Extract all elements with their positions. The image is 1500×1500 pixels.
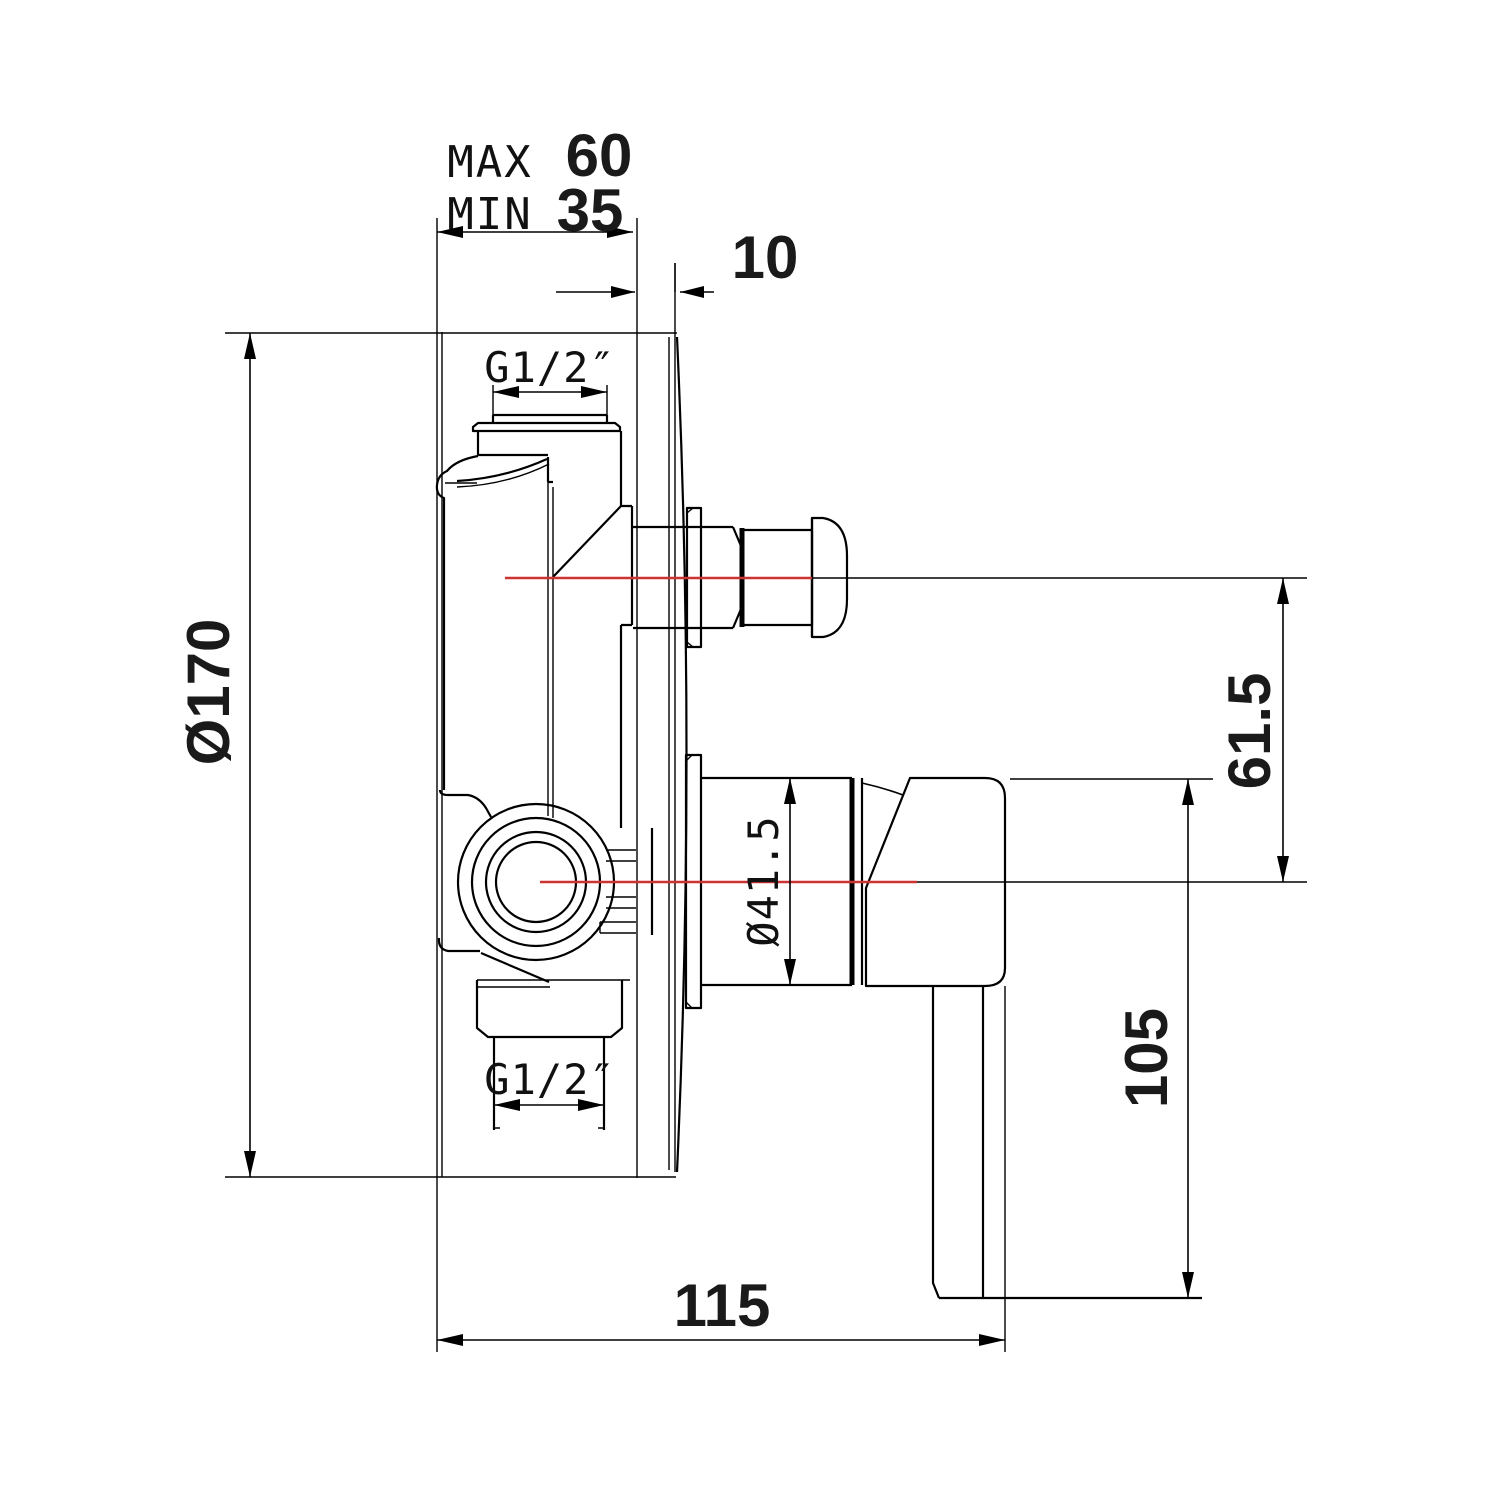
- lever-left-edge: [933, 986, 939, 1298]
- technical-drawing-canvas: MAX 60 MIN 35 10 G1/2″ Ø170 Ø41.5 61.5: [0, 0, 1500, 1500]
- body-left-profile-upper: [437, 456, 478, 790]
- arrowhead: [244, 333, 256, 359]
- dim-overall-depth: 115: [437, 1272, 1005, 1346]
- dim-thread-bottom-value: G1/2″: [484, 1055, 615, 1104]
- arrowhead: [611, 286, 635, 298]
- bell-rim-arc: [862, 783, 903, 795]
- dim-plate-offset-value: 10: [732, 224, 799, 291]
- dim-min-value: 35: [557, 177, 624, 244]
- centerlines: [505, 578, 1307, 882]
- dim-thread-top-value: G1/2″: [484, 343, 615, 392]
- dim-min-label: MIN: [447, 189, 532, 240]
- wing-curve-outer: [457, 459, 547, 481]
- dim-handle-length: 105: [1010, 779, 1213, 1298]
- arrowhead: [1277, 578, 1289, 604]
- body-step-upper: [440, 790, 491, 817]
- arrowhead: [1182, 1272, 1194, 1298]
- bottom-block: [477, 980, 622, 1037]
- lower-shoulder-lines: [477, 980, 630, 987]
- arrowhead: [437, 1334, 463, 1346]
- arrowhead: [1182, 779, 1194, 805]
- dim-plate-diameter-value: Ø170: [175, 619, 242, 766]
- dim-thread-top: G1/2″: [484, 343, 615, 398]
- dim-thread-bottom: G1/2″: [484, 1055, 615, 1111]
- upper-body-block: [478, 431, 621, 506]
- dim-sleeve-diameter-value: Ø41.5: [739, 815, 788, 946]
- diverter-boss: [621, 506, 632, 828]
- body-step-lower: [439, 938, 480, 951]
- arrowhead: [784, 778, 796, 804]
- arrowhead: [680, 286, 704, 298]
- top-pipe-flange: [473, 423, 620, 431]
- shower-valve-dimension-drawing: MAX 60 MIN 35 10 G1/2″ Ø170 Ø41.5 61.5: [0, 0, 1500, 1500]
- cartridge-step: [600, 922, 636, 933]
- dim-overall-depth-value: 115: [674, 1272, 771, 1339]
- arrowhead: [979, 1334, 1005, 1346]
- arrowhead: [784, 959, 796, 985]
- dim-embed-depth: MAX 60 MIN 35: [437, 122, 633, 244]
- valve-body: [437, 385, 652, 1130]
- arrowhead: [1277, 856, 1289, 882]
- diverter-passage-diagonal: [553, 506, 621, 577]
- dim-axis-distance-value: 61.5: [1216, 673, 1283, 790]
- dim-handle-length-value: 105: [1113, 1008, 1180, 1108]
- escutcheon-plate: [669, 263, 687, 1172]
- dim-max-label: MAX: [447, 137, 532, 188]
- dim-sleeve-diameter: Ø41.5: [739, 778, 796, 985]
- dim-axis-distance: 61.5: [1216, 578, 1289, 882]
- wing-tip: [548, 457, 553, 482]
- top-pipe: [493, 415, 607, 423]
- dim-plate-diameter: Ø170: [175, 333, 256, 1177]
- arrowhead: [244, 1151, 256, 1177]
